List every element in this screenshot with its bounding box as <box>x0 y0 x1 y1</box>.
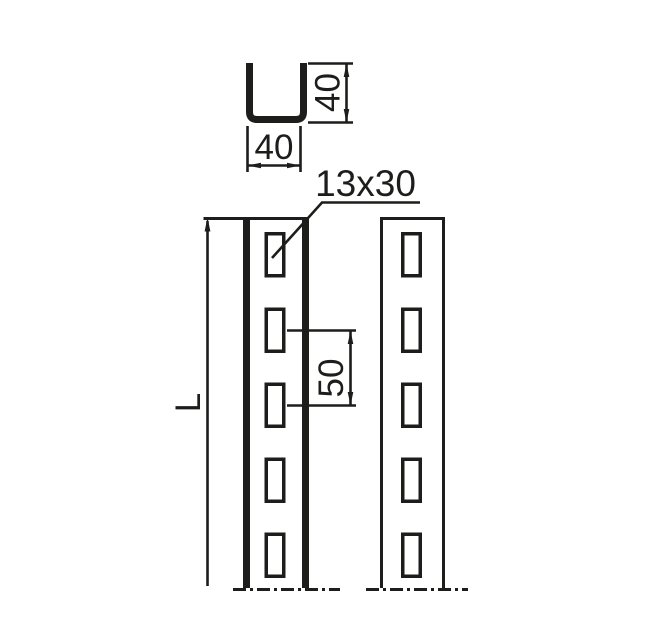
slot <box>403 384 421 426</box>
dimension-length: L <box>169 218 210 587</box>
slot <box>403 459 421 501</box>
slot-size-value: 13x30 <box>315 163 416 204</box>
dimension-section-width: 40 <box>248 126 301 172</box>
arrowhead-up <box>348 331 354 345</box>
section-height-value: 40 <box>309 73 348 112</box>
leader-line <box>272 203 420 259</box>
slot <box>403 234 421 276</box>
side-view <box>366 219 468 590</box>
cross-section-view: 40 40 <box>248 63 354 172</box>
slot <box>403 534 421 576</box>
slot <box>266 534 284 576</box>
length-value: L <box>169 393 208 412</box>
slot <box>403 309 421 351</box>
u-profile-outline <box>250 63 304 120</box>
front-view <box>204 219 341 590</box>
channel-profile-technical-drawing: 40 40 13x30 L <box>0 0 647 636</box>
slot <box>266 309 284 351</box>
slot <box>266 384 284 426</box>
section-width-value: 40 <box>255 128 294 167</box>
slot-size-callout: 13x30 <box>272 163 420 258</box>
dimension-slot-pitch: 50 <box>287 331 356 406</box>
slot <box>266 459 284 501</box>
dimension-section-height: 40 <box>308 64 353 123</box>
slot-pitch-value: 50 <box>312 359 351 398</box>
